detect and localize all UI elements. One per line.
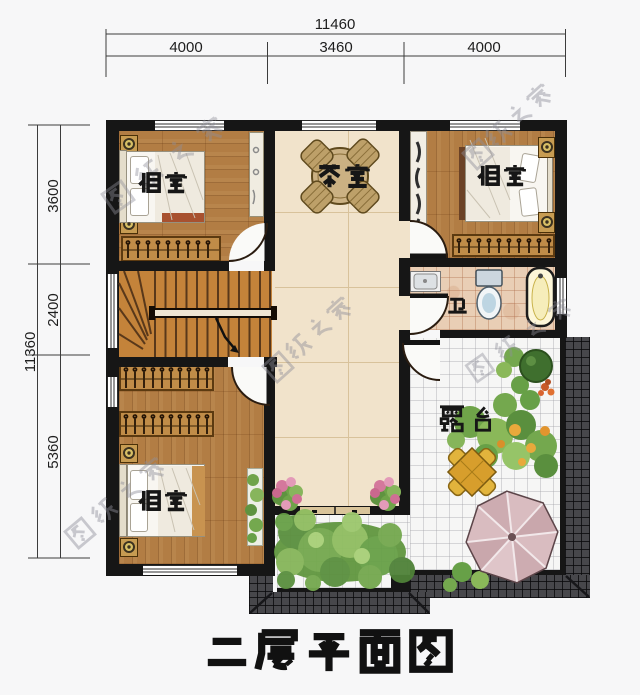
svg-text:3460: 3460 (319, 39, 352, 56)
svg-text:4000: 4000 (467, 39, 500, 56)
svg-text:11360: 11360 (22, 332, 39, 373)
svg-text:11460: 11460 (315, 16, 356, 33)
svg-text:3600: 3600 (45, 179, 62, 212)
svg-text:2400: 2400 (45, 293, 62, 326)
svg-text:5360: 5360 (45, 435, 62, 468)
svg-text:4000: 4000 (169, 39, 202, 56)
